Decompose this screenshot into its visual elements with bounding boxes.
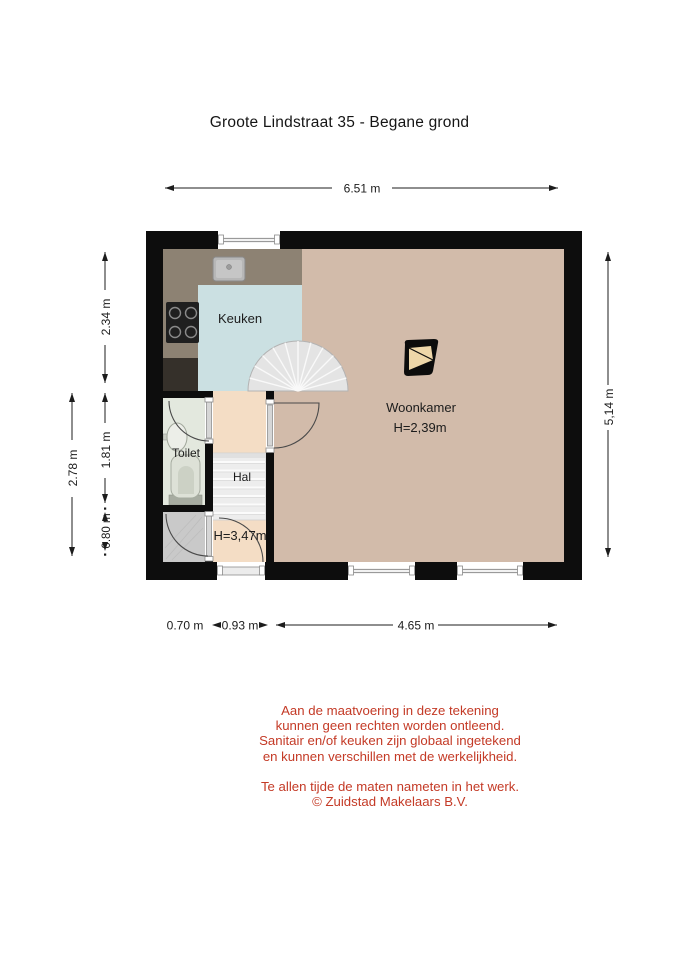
floorplan-drawing: Keuken Woonkamer H=2,39m Toilet Hal H=3,…	[0, 0, 679, 960]
svg-text:0.80 m: 0.80 m	[101, 513, 113, 548]
svg-text:4.65 m: 4.65 m	[398, 619, 435, 633]
disclaimer: Aan de maatvoering in deze tekening kunn…	[100, 703, 679, 809]
dimension-height-right: 5,14 m	[602, 252, 616, 557]
toilet-label: Toilet	[172, 446, 201, 460]
svg-text:2.78 m: 2.78 m	[66, 450, 80, 487]
living-room-height-label: H=2,39m	[393, 420, 446, 435]
dimension-left-outer: 2.78 m	[66, 393, 80, 556]
dimension-left-kitchen: 2.34 m	[99, 252, 113, 383]
svg-text:0.70 m: 0.70 m	[167, 619, 204, 633]
dimension-bottom-hall: 0.93 m	[212, 619, 268, 633]
svg-text:0.93 m: 0.93 m	[222, 619, 259, 633]
window-top	[218, 231, 280, 249]
disclaimer-line: Te allen tijde de maten nameten in het w…	[100, 779, 679, 794]
dimension-bottom-living: 4.65 m	[276, 619, 557, 633]
kitchen-label: Keuken	[218, 311, 262, 326]
kitchen-sink	[213, 257, 245, 281]
disclaimer-copyright: © Zuidstad Makelaars B.V.	[100, 794, 679, 809]
dimension-width-total: 6.51 m	[165, 182, 558, 196]
hall-height-label: H=3,47m	[213, 528, 266, 543]
dimension-left-closet: 0.80 m	[101, 508, 113, 556]
svg-text:6.51 m: 6.51 m	[344, 182, 381, 196]
disclaimer-line: Aan de maatvoering in deze tekening	[100, 703, 679, 718]
window-bottom-right	[457, 562, 523, 580]
window-bottom-left	[348, 562, 415, 580]
cooktop	[166, 302, 199, 343]
kitchen-cabinet	[163, 358, 198, 391]
dimension-bottom-closet: 0.70 m	[167, 619, 204, 633]
north-arrow-icon	[404, 339, 438, 376]
hall-staircase	[212, 453, 266, 520]
disclaimer-line: kunnen geen rechten worden ontleend.	[100, 718, 679, 733]
floorplan-page: Groote Lindstraat 35 - Begane grond	[0, 0, 679, 960]
svg-text:5,14 m: 5,14 m	[602, 389, 616, 426]
disclaimer-line: en kunnen verschillen met de werkelijkhe…	[100, 749, 679, 764]
svg-text:1.81 m: 1.81 m	[99, 432, 113, 469]
svg-text:2.34 m: 2.34 m	[99, 299, 113, 336]
living-room-label: Woonkamer	[386, 400, 457, 415]
hall-label: Hal	[233, 470, 251, 484]
disclaimer-line: Sanitair en/of keuken zijn globaal inget…	[100, 733, 679, 748]
toilet-bowl	[169, 455, 202, 505]
dimension-left-toilet: 1.81 m	[99, 393, 113, 503]
